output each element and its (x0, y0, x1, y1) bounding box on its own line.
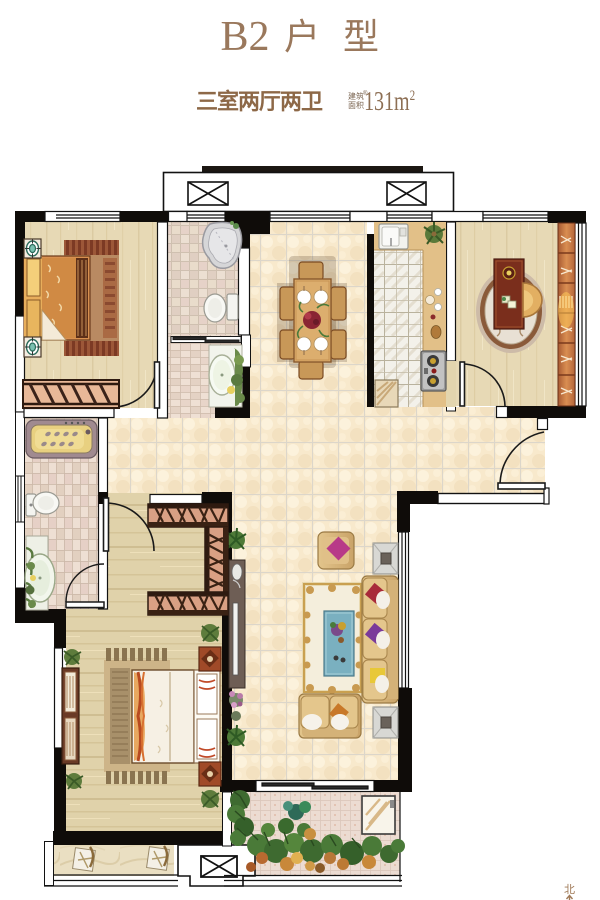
svg-text:建筑: 建筑 (348, 91, 364, 101)
svg-text:三室两厅两卫: 三室两厅两卫 (196, 89, 323, 114)
svg-text:户: 户 (284, 17, 320, 57)
svg-text:型: 型 (343, 17, 379, 57)
svg-text:131m2: 131m2 (364, 86, 415, 116)
svg-text:北: 北 (564, 883, 575, 896)
svg-text:面积: 面积 (348, 100, 364, 110)
svg-text:B2: B2 (220, 14, 269, 60)
